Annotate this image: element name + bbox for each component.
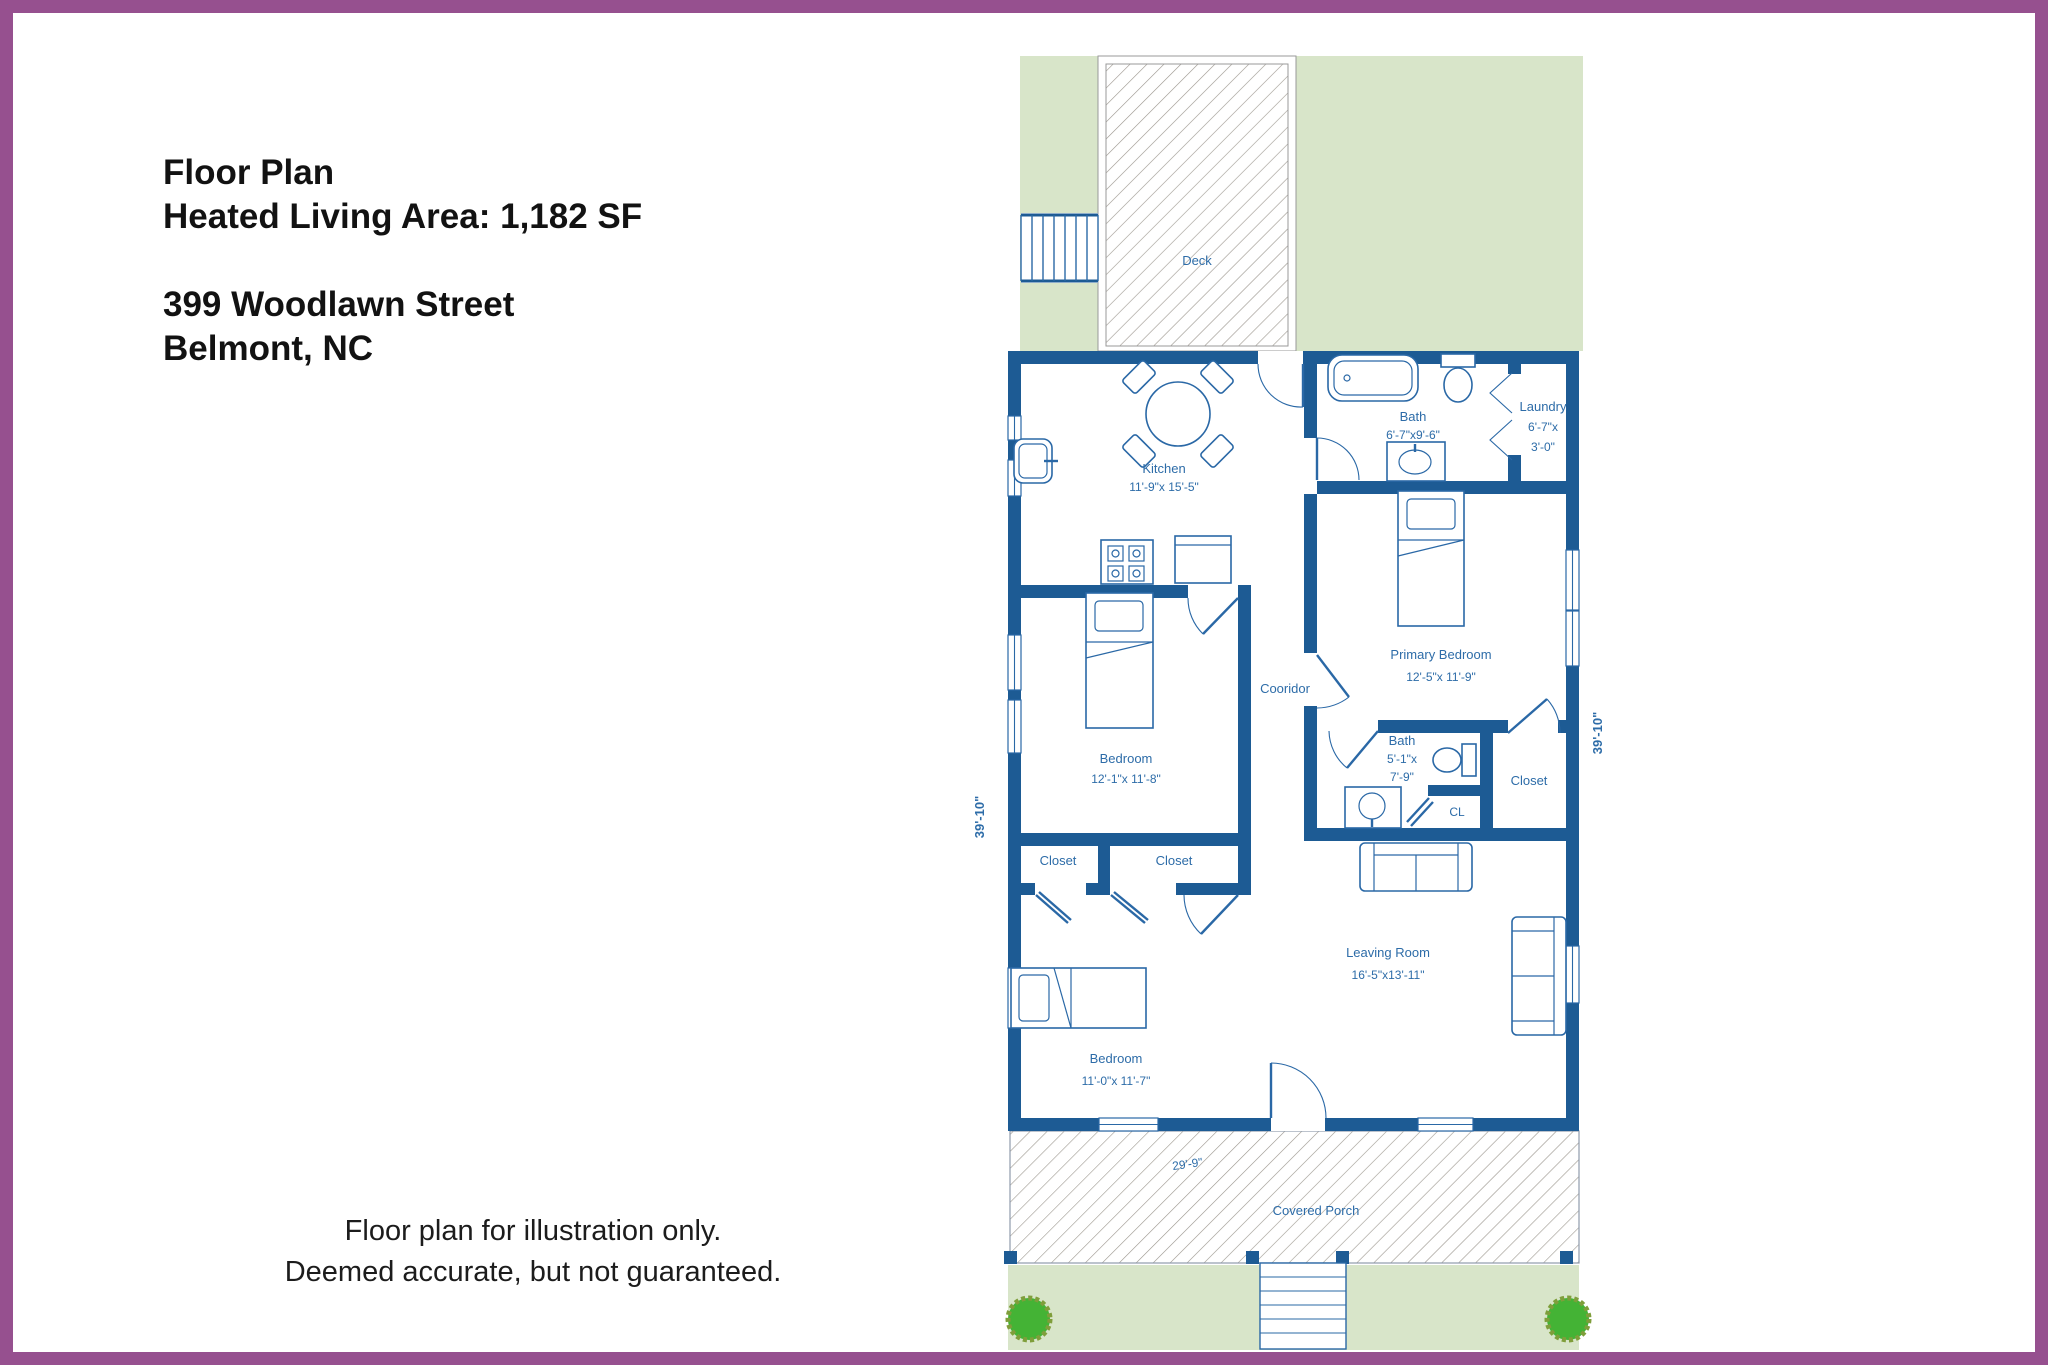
cl-label: CL xyxy=(1449,805,1465,819)
bath-main-dims: 6'-7"x9'-6" xyxy=(1386,428,1440,442)
counter xyxy=(1175,536,1231,583)
closet-right-label: Closet xyxy=(1156,853,1193,868)
room-labels: Deck Kitchen 11'-9"x 15'-5" Bath 6'-7"x9… xyxy=(972,253,1605,1218)
plan-title: Floor Plan xyxy=(163,151,642,195)
closet-left-label: Closet xyxy=(1040,853,1077,868)
primary-bedroom-label: Primary Bedroom xyxy=(1390,647,1491,662)
dining-table xyxy=(1146,382,1210,446)
side-dim-left: 39'-10" xyxy=(972,796,987,839)
closet-primary-label: Closet xyxy=(1511,773,1548,788)
living-furniture xyxy=(1360,843,1566,1035)
toilet-bowl xyxy=(1433,748,1461,772)
kitchen-dims: 11'-9"x 15'-5" xyxy=(1129,480,1199,494)
plan-subtitle: Heated Living Area: 1,182 SF xyxy=(163,195,642,239)
deck-label: Deck xyxy=(1182,253,1212,268)
deck-stairs xyxy=(1021,213,1098,283)
kitchen-label: Kitchen xyxy=(1142,461,1185,476)
covered-porch xyxy=(1004,1131,1579,1264)
disclaimer-line2: Deemed accurate, but not guaranteed. xyxy=(178,1252,888,1293)
toilet-tank xyxy=(1462,744,1476,776)
bedroom-middle-dims: 12'-1"x 11'-8" xyxy=(1091,772,1161,786)
toilet-bowl xyxy=(1444,368,1472,402)
deck xyxy=(1098,56,1296,351)
bath-small-dims-1: 5'-1"x xyxy=(1387,752,1417,766)
toilet-tank xyxy=(1441,354,1475,367)
disclaimer-block: Floor plan for illustration only. Deemed… xyxy=(178,1211,888,1293)
chair xyxy=(1200,434,1235,469)
laundry-dims-1: 6'-7"x xyxy=(1528,420,1558,434)
info-block: Floor Plan Heated Living Area: 1,182 SF … xyxy=(163,151,642,371)
living-room-dims: 16'-5"x13'-11" xyxy=(1352,968,1425,982)
bed-primary xyxy=(1398,491,1464,626)
bath-small-label: Bath xyxy=(1389,733,1416,748)
address-line1: 399 Woodlawn Street xyxy=(163,283,642,327)
porch-label: Covered Porch xyxy=(1273,1203,1360,1218)
bush-left xyxy=(1008,1298,1050,1340)
bedroom-middle-label: Bedroom xyxy=(1100,751,1153,766)
bedroom-front-dims: 11'-0"x 11'-7" xyxy=(1082,1074,1151,1088)
bed-front-bedroom xyxy=(1011,968,1146,1028)
chair xyxy=(1122,360,1157,395)
living-room-label: Leaving Room xyxy=(1346,945,1430,960)
bath-small-dims-2: 7'-9" xyxy=(1390,770,1414,784)
address-line2: Belmont, NC xyxy=(163,327,642,371)
side-dim-right: 39'-10" xyxy=(1590,712,1605,755)
primary-bedroom-dims: 12'-5"x 11'-9" xyxy=(1406,670,1476,684)
laundry-label: Laundry xyxy=(1520,399,1567,414)
bedroom-front-label: Bedroom xyxy=(1090,1051,1143,1066)
chair xyxy=(1200,360,1235,395)
disclaimer-line1: Floor plan for illustration only. xyxy=(178,1211,888,1252)
bush-right xyxy=(1547,1298,1589,1340)
corridor-label: Cooridor xyxy=(1260,681,1311,696)
bath-main-label: Bath xyxy=(1400,409,1427,424)
laundry-dims-2: 3'-0" xyxy=(1531,440,1555,454)
front-steps xyxy=(1260,1263,1346,1349)
kitchen-fixtures xyxy=(1014,360,1234,584)
flyer-page: Floor Plan Heated Living Area: 1,182 SF … xyxy=(0,0,2048,1365)
floor-plan-graphic: Deck Kitchen 11'-9"x 15'-5" Bath 6'-7"x9… xyxy=(958,43,1638,1353)
